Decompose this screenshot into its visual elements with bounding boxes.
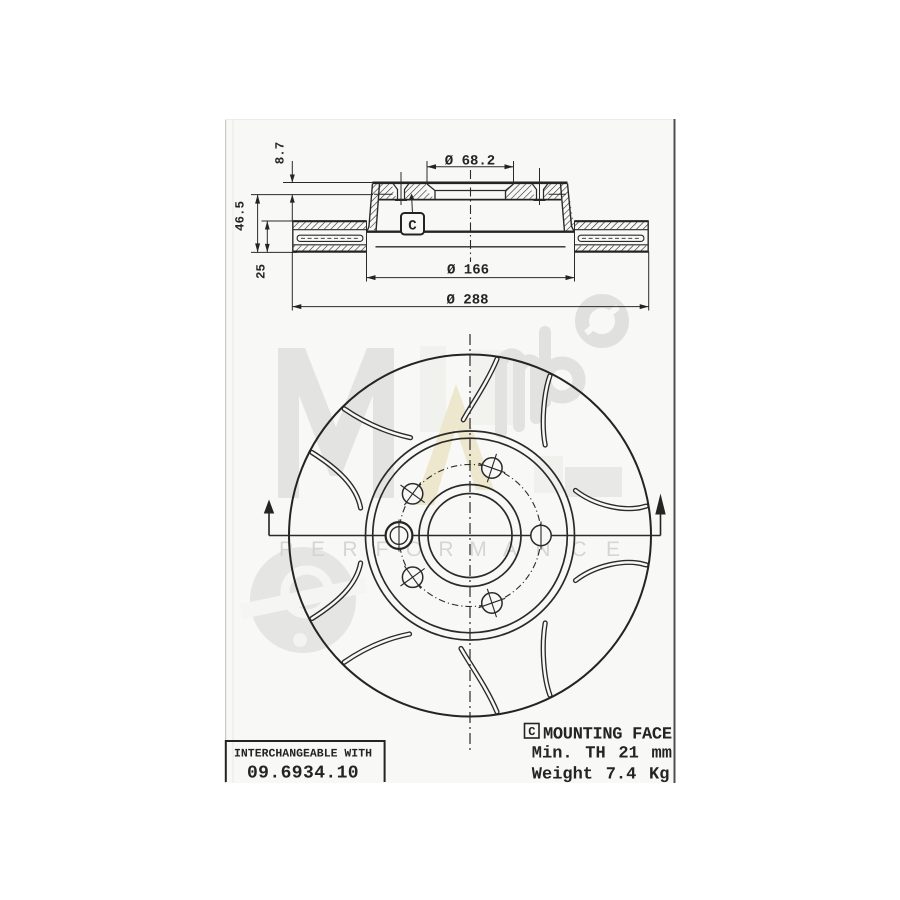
svg-text:Weight 7.4 Kg: Weight 7.4 Kg [532, 766, 670, 785]
svg-text:46.5: 46.5 [234, 201, 248, 231]
svg-text:Ø 68.2: Ø 68.2 [445, 154, 495, 170]
svg-text:Ø 288: Ø 288 [446, 293, 488, 309]
svg-text:8.7: 8.7 [274, 142, 288, 165]
svg-text:INTERCHANGEABLE WITH: INTERCHANGEABLE WITH [234, 748, 372, 761]
svg-text:Ø 166: Ø 166 [447, 263, 489, 279]
svg-text:R: R [438, 538, 453, 561]
svg-text:C: C [408, 219, 417, 235]
svg-text:25: 25 [255, 264, 269, 279]
svg-text:R: R [342, 538, 357, 561]
svg-text:Min. TH 21 mm: Min. TH 21 mm [532, 745, 672, 764]
svg-text:C: C [528, 725, 535, 739]
svg-text:MOUNTING FACE: MOUNTING FACE [543, 726, 672, 745]
svg-text:E: E [606, 538, 620, 561]
svg-text:09.6934.10: 09.6934.10 [247, 764, 359, 784]
svg-text:M: M [469, 538, 487, 561]
svg-text:E: E [311, 538, 325, 561]
